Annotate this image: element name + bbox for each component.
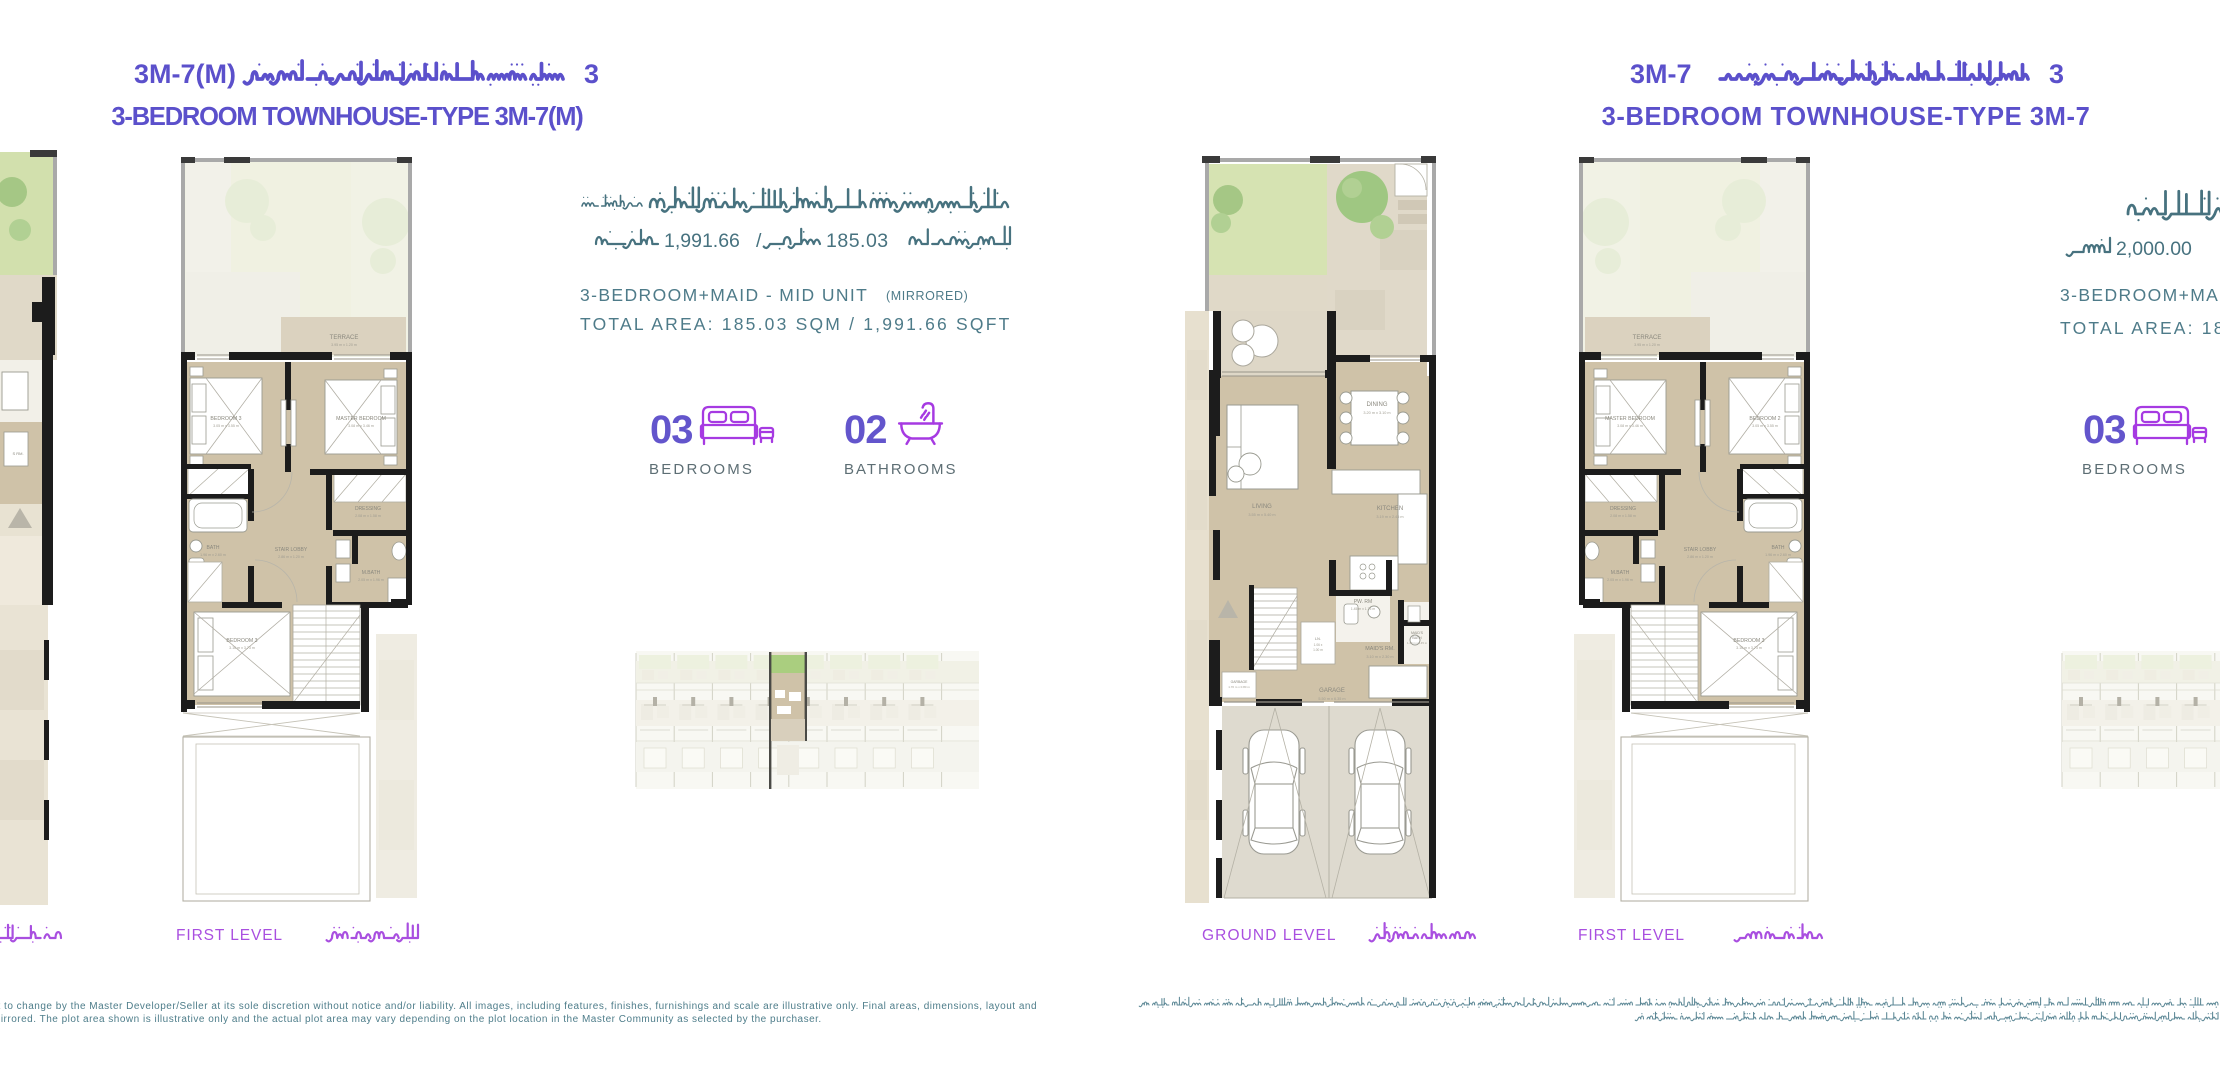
svg-text:3M-7: 3M-7 — [1630, 59, 1692, 89]
svg-text:3.20 m x 3.10 m: 3.20 m x 3.10 m — [1363, 411, 1390, 415]
svg-text:BEDROOM 3: BEDROOM 3 — [226, 638, 257, 644]
svg-text:MAID'S RM.: MAID'S RM. — [1365, 646, 1394, 652]
svg-text:1.96 m x 2.60 m: 1.96 m x 2.60 m — [1765, 553, 1791, 557]
svg-text:FIRST LEVEL: FIRST LEVEL — [1578, 927, 1685, 944]
svg-text:FIRST LEVEL: FIRST LEVEL — [176, 927, 283, 944]
svg-text:TOTAL AREA: 185.03 SQM / 1,991: TOTAL AREA: 185.03 SQM / 1,991.66 SQFT — [580, 314, 1012, 334]
svg-text:3.95 m x 1.20 m: 3.95 m x 1.20 m — [1634, 343, 1660, 347]
svg-text:BEDROOM 3: BEDROOM 3 — [1733, 638, 1764, 644]
svg-text:BEDROOM 2: BEDROOM 2 — [1749, 416, 1780, 422]
svg-text:MASTER BEDROOM: MASTER BEDROOM — [1605, 416, 1655, 422]
svg-text:1.45 m x 1.75 m: 1.45 m x 1.75 m — [1351, 607, 1375, 611]
svg-text:TERRACE: TERRACE — [1633, 335, 1662, 341]
svg-text:2.05 m x 1.96 m: 2.05 m x 1.96 m — [358, 578, 384, 582]
svg-text:BEDROOM 3: BEDROOM 3 — [210, 416, 241, 422]
svg-text:2,000.00: 2,000.00 — [2116, 238, 2192, 260]
svg-text:3: 3 — [584, 59, 599, 89]
svg-text:3.55 m x 5.40 m: 3.55 m x 5.40 m — [1248, 513, 1275, 517]
svg-text:02: 02 — [844, 408, 887, 452]
svg-text:3.08 m x 3.46 m: 3.08 m x 3.46 m — [1617, 424, 1643, 428]
svg-text:GARBAGE: GARBAGE — [1231, 680, 1249, 684]
svg-text:2.05 m x 1.96 m: 2.05 m x 1.96 m — [1607, 578, 1633, 582]
svg-text:STAIR LOBBY: STAIR LOBBY — [1684, 547, 1717, 553]
svg-text:TOTAL AREA: 185.03 SQM / 1,991: TOTAL AREA: 185.03 SQM / 1,991.66 SQFT — [2060, 318, 2220, 338]
svg-text:3.08 m x 3.46 m: 3.08 m x 3.46 m — [348, 424, 374, 428]
svg-text:3-BEDROOM TOWNHOUSE-TYPE 3M-7: 3-BEDROOM TOWNHOUSE-TYPE 3M-7 — [1602, 103, 2091, 131]
svg-text:MAID'S: MAID'S — [1411, 631, 1424, 635]
svg-text:3-BEDROOM+MAID - MID UNIT: 3-BEDROOM+MAID - MID UNIT — [580, 285, 868, 305]
svg-text:M.BATH: M.BATH — [1611, 570, 1630, 576]
svg-text:GARAGE: GARAGE — [1319, 688, 1345, 694]
svg-text:3.05 m x 3.55 m: 3.05 m x 3.55 m — [213, 424, 239, 428]
svg-text:DRESSING: DRESSING — [1610, 506, 1636, 512]
svg-text:DRESSING: DRESSING — [355, 506, 381, 512]
svg-text:TERRACE: TERRACE — [330, 335, 359, 341]
svg-text:MASTER BEDROOM: MASTER BEDROOM — [336, 416, 386, 422]
svg-text:3.16 m x 3.73 m: 3.16 m x 3.73 m — [229, 646, 255, 650]
svg-text:1.00 m: 1.00 m — [1313, 648, 1323, 652]
svg-text:GROUND LEVEL: GROUND LEVEL — [1202, 927, 1337, 944]
svg-text:1,991.66: 1,991.66 — [664, 230, 740, 252]
svg-text:1.70 m x 0.80 m: 1.70 m x 0.80 m — [1228, 685, 1250, 689]
svg-text:03: 03 — [2083, 408, 2126, 452]
svg-text:03: 03 — [650, 408, 693, 452]
svg-text:1.06 x: 1.06 x — [1314, 643, 1323, 647]
svg-text:BATH: BATH — [1772, 545, 1785, 551]
svg-text:BATH: BATH — [1412, 636, 1422, 640]
svg-text:BATH: BATH — [207, 545, 220, 551]
svg-text:185.03: 185.03 — [826, 230, 889, 252]
svg-text:LN.: LN. — [1315, 637, 1321, 641]
svg-text:3.19 m x 2.45 m: 3.19 m x 2.45 m — [1376, 515, 1403, 519]
svg-text:S RM.: S RM. — [12, 451, 23, 456]
svg-text:LIVING: LIVING — [1252, 504, 1272, 510]
svg-text:KITCHEN: KITCHEN — [1377, 506, 1403, 512]
svg-text:STAIR LOBBY: STAIR LOBBY — [275, 547, 308, 553]
svg-text:3.05 m x 3.55 m: 3.05 m x 3.55 m — [1752, 424, 1778, 428]
svg-text:(MIRRORED): (MIRRORED) — [886, 289, 968, 303]
svg-text:BATHROOMS: BATHROOMS — [844, 461, 958, 478]
svg-text:3M-7(M): 3M-7(M) — [134, 59, 236, 89]
svg-text:3-BEDROOM+MAID - MID UNIT: 3-BEDROOM+MAID - MID UNIT — [2060, 285, 2220, 305]
svg-text:3-BEDROOM TOWNHOUSE-TYPE 3M-7(: 3-BEDROOM TOWNHOUSE-TYPE 3M-7(M) — [111, 103, 583, 131]
svg-text:2.08 m x 1.58 m: 2.08 m x 1.58 m — [1610, 514, 1636, 518]
svg-text:5.50 m x 6.35 m: 5.50 m x 6.35 m — [1318, 697, 1345, 701]
svg-text:3.95 m x 1.20 m: 3.95 m x 1.20 m — [331, 343, 357, 347]
svg-text:3: 3 — [2049, 59, 2064, 89]
svg-text:3.16 m x 3.73 m: 3.16 m x 3.73 m — [1736, 646, 1762, 650]
svg-text:/: / — [756, 230, 762, 252]
svg-text:BEDROOMS: BEDROOMS — [649, 461, 754, 478]
svg-text:PW. RM: PW. RM — [1354, 599, 1372, 605]
svg-text:1.40 m x 2.45 m: 1.40 m x 2.45 m — [1407, 641, 1428, 645]
svg-text:BEDROOMS: BEDROOMS — [2082, 461, 2187, 478]
svg-text:2.86 m x 1.20 m: 2.86 m x 1.20 m — [1687, 555, 1713, 559]
svg-text:2.86 m x 1.20 m: 2.86 m x 1.20 m — [278, 555, 304, 559]
svg-text:DINING: DINING — [1367, 402, 1388, 408]
svg-text:2.08 m x 1.58 m: 2.08 m x 1.58 m — [355, 514, 381, 518]
svg-text:1.96 m x 2.60 m: 1.96 m x 2.60 m — [200, 553, 226, 557]
svg-text:M.BATH: M.BATH — [362, 570, 381, 576]
svg-text:3.10 m x 2.30 m: 3.10 m x 2.30 m — [1366, 655, 1393, 659]
